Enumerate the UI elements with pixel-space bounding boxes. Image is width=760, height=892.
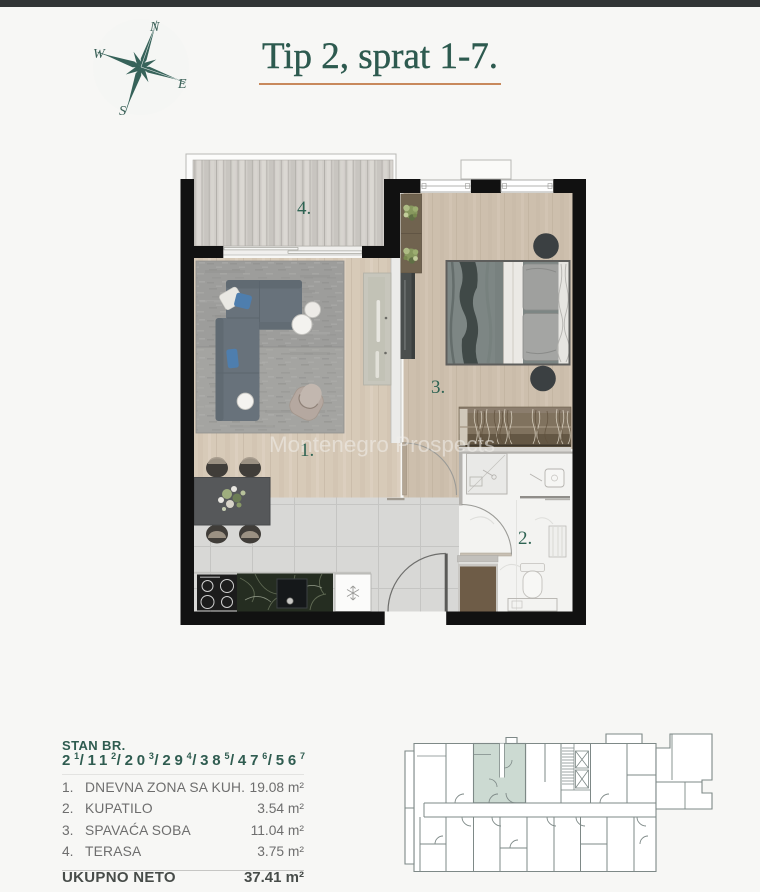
svg-text:W: W [93, 47, 106, 62]
svg-text:4.: 4. [297, 198, 311, 219]
svg-text:3.: 3. [431, 377, 445, 398]
svg-text:N: N [149, 20, 160, 35]
svg-text:E: E [177, 77, 187, 92]
svg-text:2.: 2. [518, 528, 532, 549]
svg-text:S: S [119, 104, 126, 119]
svg-text:Montenegro Prospects: Montenegro Prospects [269, 432, 495, 457]
